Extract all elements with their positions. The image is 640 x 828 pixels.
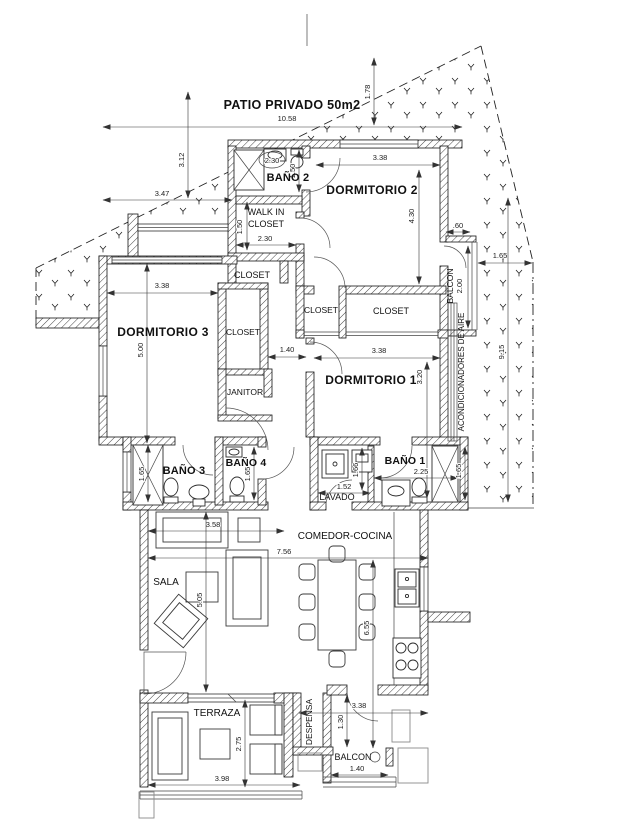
dim-patio-depth-left: 3.12 (177, 153, 186, 168)
wall (99, 256, 107, 346)
window (99, 346, 107, 396)
wall (280, 261, 288, 283)
dim-comedor-height: 6.55 (362, 621, 371, 636)
wall (140, 690, 148, 787)
wall (306, 338, 314, 344)
dim-bano1-height: 1.65 (454, 464, 463, 479)
wall (215, 437, 223, 505)
dim-bano1-width: 2.25 (414, 467, 429, 476)
wall (440, 332, 448, 442)
terraza-sofa (152, 712, 188, 780)
dim-hall-width: 1.40 (280, 345, 295, 354)
wall (140, 510, 148, 650)
wall (296, 244, 304, 286)
furniture (152, 512, 375, 780)
door-arc-entry (144, 652, 186, 694)
terraza-railing (139, 791, 302, 818)
despensa-step (298, 753, 322, 771)
exterior-unit (392, 710, 410, 742)
room-label-terraza: TERRAZA (194, 708, 241, 719)
balcony-bottom-railing (323, 777, 396, 787)
wall (218, 283, 268, 289)
washer (322, 450, 348, 478)
dim-patio-left-width: 3.47 (155, 189, 170, 198)
sofa-top (156, 512, 228, 548)
wall (258, 479, 266, 505)
wall (339, 286, 346, 338)
door-arc-bano4 (262, 447, 294, 479)
wall (123, 437, 131, 452)
wall (293, 747, 333, 755)
wall (218, 283, 226, 375)
room-label-dorm3: DORMITORIO 3 (117, 325, 208, 339)
wall (284, 693, 293, 777)
dimensions: 10.58 1.78 3.12 3.47 2.30 1.50 3.38 4.30… (103, 58, 532, 787)
dim-dorm2-width: 3.38 (373, 153, 388, 162)
wall (99, 396, 107, 441)
wall (293, 693, 301, 755)
window (112, 257, 222, 263)
room-label-closet-c: CLOSET (304, 305, 338, 315)
room-label-dorm2: DORMITORIO 2 (326, 183, 417, 197)
sink-bano1 (382, 480, 410, 506)
wall (128, 214, 138, 258)
room-label-lavado: LAVADO (319, 492, 354, 502)
wall (258, 437, 266, 447)
patio-grass-right (480, 46, 533, 504)
terraza-chair (250, 744, 282, 774)
room-label-closet-a: CLOSET (234, 270, 271, 280)
wall (378, 685, 428, 695)
door-arc-dorm2 (314, 257, 345, 288)
wall (306, 372, 314, 437)
wall (260, 283, 268, 375)
balcony-top-railing (472, 242, 477, 330)
patio-wall (36, 318, 99, 328)
wall (236, 196, 302, 204)
wall (140, 693, 188, 703)
pillar (139, 792, 154, 818)
room-label-janitor: JANITOR (227, 387, 263, 397)
dim-dorm2-height: 4.30 (407, 209, 416, 224)
dim-patio-width: 10.58 (278, 114, 297, 123)
dim-living-width: 7.56 (277, 547, 292, 556)
dim-walkin-width: 2.30 (258, 234, 273, 243)
room-label-closet-d: CLOSET (373, 306, 410, 316)
sink-bano4 (226, 447, 242, 457)
wall (345, 286, 446, 294)
dim-lavado-width: 1.52 (337, 482, 352, 491)
room-label-bano1: BAÑO 1 (385, 454, 426, 467)
kitchen-sink (395, 569, 419, 607)
door-arc-walkin (300, 218, 330, 248)
wall (264, 369, 272, 397)
dim-bano2-width: 2.30 (265, 156, 280, 165)
room-label-patio: PATIO PRIVADO 50m2 (224, 98, 361, 112)
dim-balcon-top-width: .60 (453, 221, 463, 230)
room-label-walkin-2: CLOSET (248, 219, 285, 229)
wall (327, 685, 347, 695)
ac-louver (448, 303, 457, 441)
window (420, 567, 428, 611)
side-table (238, 518, 260, 542)
dim-patio-right-width: 1.65 (493, 251, 508, 260)
window (138, 224, 228, 231)
dim-terraza-height: 2.75 (234, 737, 243, 752)
room-label-bano3: BAÑO 3 (163, 464, 206, 477)
wall (323, 693, 331, 783)
room-label-balcon-bottom: BALCON (334, 752, 371, 762)
sofa-right (226, 550, 268, 626)
room-label-ac: ACONDICIONADORES DE AIRE (457, 313, 466, 432)
terraza-chair (250, 705, 282, 735)
room-label-balcon-top: BALCON (445, 269, 455, 304)
room-label-sala: SALA (153, 577, 179, 588)
shower-bano2 (234, 150, 264, 190)
wall (296, 212, 304, 218)
window (340, 140, 418, 148)
wall (218, 369, 226, 419)
dim-patio-depth-right: 1.78 (363, 85, 372, 100)
wall (310, 437, 380, 445)
wall (438, 330, 448, 338)
dim-sala-top-width: 3.58 (206, 520, 221, 529)
sliding-door (188, 694, 274, 702)
dim-balcon-top-height: 2.00 (455, 279, 464, 294)
wall (228, 253, 304, 261)
room-label-despensa: DESPENSA (304, 699, 314, 746)
room-label-bano4: BAÑO 4 (226, 456, 267, 469)
dim-despensa-depth: 1.30 (336, 715, 345, 730)
dim-terraza-width: 3.98 (215, 774, 230, 783)
room-label-dorm1: DORMITORIO 1 (325, 373, 416, 387)
dining-table (318, 560, 356, 650)
dim-patio-right-height: 9.15 (497, 345, 506, 360)
toilet-bano4 (230, 477, 244, 502)
dim-sala-height: 5.05 (195, 593, 204, 608)
dim-lavado-height: 1.66 (351, 463, 360, 478)
wall (296, 330, 304, 338)
toilet-bano1 (412, 478, 427, 503)
room-label-closet-b: CLOSET (226, 327, 260, 337)
room-label-bano2: BAÑO 2 (267, 171, 310, 184)
dim-dorm1-width: 3.38 (372, 346, 387, 355)
wall (386, 748, 393, 766)
dim-bano3-height: 1.65 (137, 467, 146, 482)
dining-chairs (299, 546, 375, 667)
room-label-walkin-1: WALK IN (248, 207, 285, 217)
wall (420, 510, 428, 567)
exterior-step (398, 748, 428, 783)
wall (440, 146, 448, 242)
door-arc-balcony-top (444, 246, 466, 268)
dim-balcon-bottom-width: 1.40 (350, 764, 365, 773)
wall (310, 502, 326, 510)
dim-walkin-height: 1.50 (235, 220, 244, 235)
wall (446, 236, 476, 242)
terraza-table (200, 729, 230, 759)
dim-dorm3-height: 5.00 (136, 343, 145, 358)
floor-plan-page: 10.58 1.78 3.12 3.47 2.30 1.50 3.38 4.30… (0, 0, 640, 828)
toilet-bano3 (164, 478, 178, 503)
dim-kitchen-bottom: 3.38 (352, 701, 367, 710)
wall (428, 612, 470, 622)
floor-plan-svg: 10.58 1.78 3.12 3.47 2.30 1.50 3.38 4.30… (0, 0, 640, 828)
window (123, 452, 131, 492)
wall (218, 415, 272, 421)
wall (310, 437, 318, 510)
room-label-comedor: COMEDOR-COCINA (298, 531, 393, 542)
dim-dorm3-width: 3.38 (155, 281, 170, 290)
closet-bifold-doors (304, 332, 438, 336)
stove (393, 638, 421, 678)
